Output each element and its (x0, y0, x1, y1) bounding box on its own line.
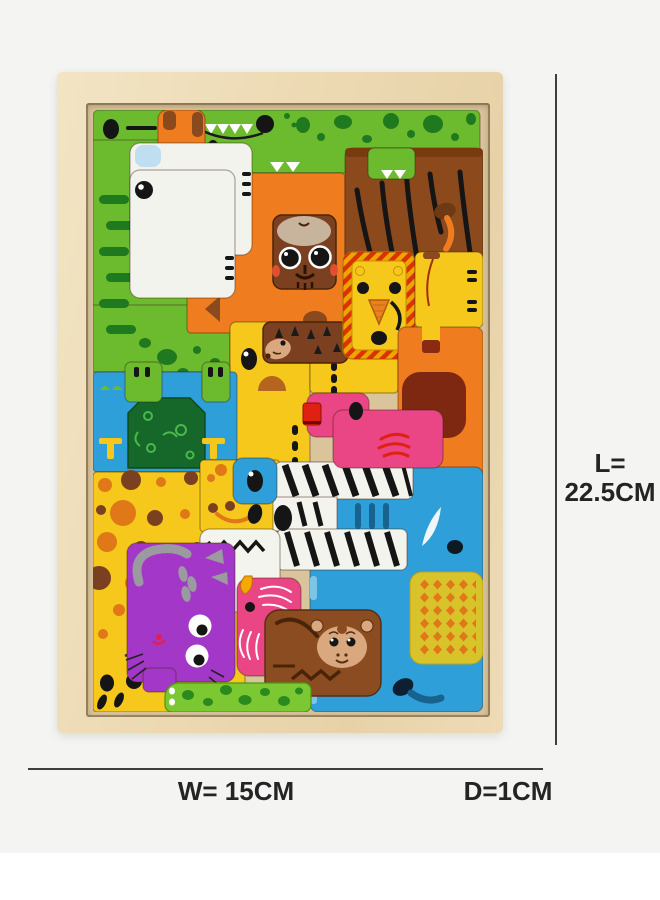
piece-hedgehog (263, 322, 348, 363)
piece-snake (165, 683, 311, 712)
piece-cat (126, 543, 235, 692)
width-dimension-line (28, 768, 543, 770)
depth-label: D=1CM (453, 777, 563, 806)
piece-hippo (93, 362, 237, 472)
crocodile-tab (368, 148, 415, 179)
length-label-line2: 22.5CM (560, 478, 660, 507)
piece-tiger-cub-face (272, 215, 338, 290)
length-label: L= 22.5CM (560, 449, 660, 507)
product-photo: L= 22.5CM W= 15CM D=1CM (0, 0, 660, 900)
length-label-line1: L= (560, 449, 660, 478)
length-dimension-line (555, 74, 557, 745)
bottom-white-band (0, 853, 660, 900)
hippo-head-block (233, 458, 277, 504)
piece-camel (415, 252, 483, 328)
puzzle-board (93, 110, 483, 712)
piece-polar-bear (130, 143, 252, 298)
width-label: W= 15CM (146, 777, 326, 806)
